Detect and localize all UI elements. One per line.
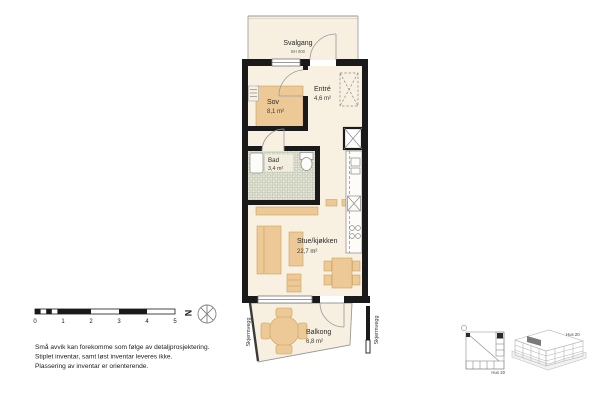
sofa <box>257 226 281 274</box>
bathroom <box>248 151 315 200</box>
disclaimer-notes: Små avvik kan forekomme som følge av det… <box>35 343 210 370</box>
scale-tick: 3 <box>117 319 121 325</box>
compass-icon <box>198 305 216 323</box>
balkong-label: Balkong <box>306 329 331 336</box>
bad-area: 3,4 m² <box>268 166 283 172</box>
north-letter: N <box>183 310 193 317</box>
dining-table <box>332 258 352 288</box>
entre-label: Entré <box>314 86 331 93</box>
dining-chair <box>353 261 361 271</box>
screen-wall-right <box>366 306 370 340</box>
balcony-chair <box>276 308 292 317</box>
balcony-table <box>269 316 299 346</box>
north-indicator: N <box>183 305 216 323</box>
stool-1 <box>326 200 337 207</box>
sideboard <box>256 207 318 215</box>
screen-wall-label-right: Skjermvegg <box>374 315 380 344</box>
scale-tick: 0 <box>33 319 37 325</box>
scale-tick: 2 <box>89 319 93 325</box>
floor-plan-page: Svalgang BH 900 Sov 8,1 m² Entré 4,6 m² … <box>0 0 600 400</box>
building-unit-highlight <box>527 336 541 346</box>
key-plan-unit-highlight <box>497 333 503 339</box>
balcony-chair <box>276 345 292 354</box>
note-line: Plassering av inventar er orienterende. <box>35 363 148 370</box>
sov-area: 8,1 m² <box>267 109 284 115</box>
bedroom-window <box>272 59 300 66</box>
dining-chair <box>353 275 361 285</box>
stue-area: 22,7 m² <box>297 249 317 255</box>
sov-label: Sov <box>267 99 280 106</box>
living-room-window <box>258 296 312 303</box>
svalgang-label: Svalgang <box>283 40 312 47</box>
scale-bar: 0 1 2 3 4 5 <box>33 309 177 325</box>
bad-label: Bad <box>268 157 280 164</box>
balcony-chair <box>261 323 270 339</box>
kitchen-sink <box>351 158 360 166</box>
lounge-chair <box>287 274 301 292</box>
stue-label: Stue/kjøkken <box>297 238 338 245</box>
svalgang-sill-note: BH 900 <box>291 49 306 54</box>
building-label: Hus 20 <box>566 332 580 337</box>
building-model: Hus 20 <box>512 330 586 370</box>
dining-chair <box>324 261 332 271</box>
toilet <box>300 153 313 171</box>
scale-tick: 5 <box>173 319 177 325</box>
screen-wall-label-left: Skjermvegg <box>246 317 252 346</box>
key-plan: Hus 20 <box>461 325 505 375</box>
entre-area: 4,6 m² <box>314 96 331 102</box>
note-line: Små avvik kan forekomme som følge av det… <box>35 343 210 351</box>
bed-annotation-box <box>249 86 259 101</box>
key-plan-building-label: Hus 20 <box>491 370 505 375</box>
dining-chair <box>324 275 332 285</box>
note-line: Stiplet inventar, samt løst inventar lev… <box>35 354 173 361</box>
kitchen-counter <box>346 151 362 253</box>
key-plan-north-icon <box>461 325 466 330</box>
bathroom-sink <box>250 153 263 173</box>
kitchen-appliance <box>348 196 361 211</box>
tech-shaft <box>344 128 362 149</box>
balkong-area: 6,8 m² <box>306 339 323 345</box>
scale-tick: 1 <box>61 319 65 325</box>
floor-plan-drawing: Svalgang BH 900 Sov 8,1 m² Entré 4,6 m² … <box>0 0 600 400</box>
scale-tick: 4 <box>145 319 149 325</box>
